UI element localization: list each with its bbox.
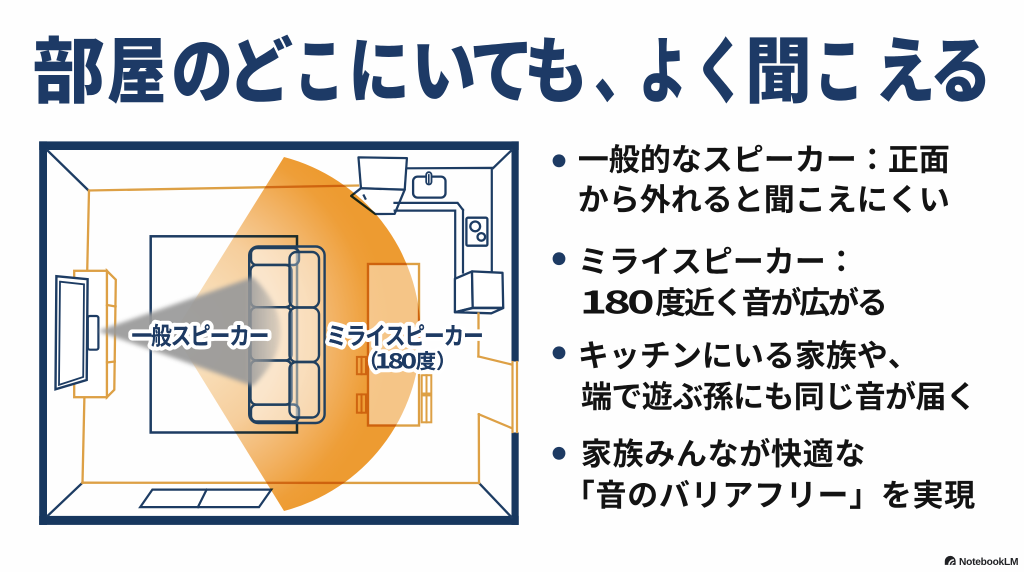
svg-text:NotebookLM: NotebookLM <box>959 557 1018 568</box>
